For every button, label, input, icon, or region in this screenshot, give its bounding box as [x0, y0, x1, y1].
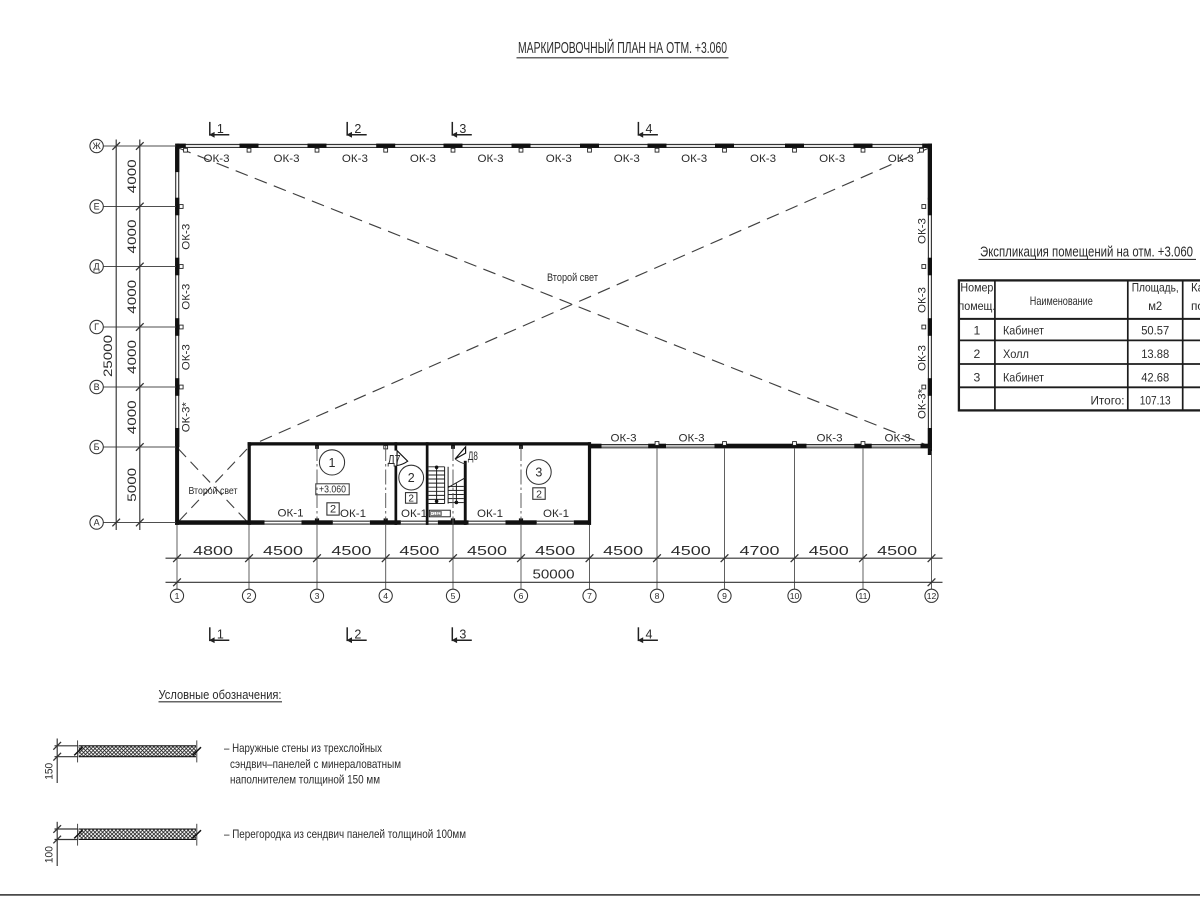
svg-text:7: 7 [587, 591, 592, 601]
svg-text:6: 6 [519, 591, 524, 601]
svg-text:50000: 50000 [533, 567, 575, 581]
svg-text:4000: 4000 [125, 280, 139, 314]
svg-text:4500: 4500 [467, 544, 507, 558]
svg-text:2: 2 [247, 591, 252, 601]
svg-text:4700: 4700 [740, 544, 780, 558]
svg-text:4000: 4000 [125, 400, 139, 434]
svg-text:Холл: Холл [1003, 347, 1029, 361]
svg-text:ОК-3*: ОК-3* [181, 401, 193, 432]
svg-text:ОК-1: ОК-1 [543, 508, 569, 520]
svg-text:4500: 4500 [809, 544, 849, 558]
svg-text:ОК-3: ОК-3 [181, 224, 193, 250]
svg-text:Г: Г [94, 322, 99, 332]
svg-text:Ж: Ж [92, 141, 101, 151]
svg-text:+3.060: +3.060 [319, 485, 346, 496]
svg-text:ОК-3*: ОК-3* [917, 388, 929, 419]
svg-text:А: А [94, 518, 100, 528]
svg-text:ОК-3: ОК-3 [888, 153, 914, 165]
svg-text:2: 2 [354, 122, 361, 136]
svg-text:Второй свет: Второй свет [189, 486, 238, 497]
svg-text:ОК-3: ОК-3 [204, 153, 230, 165]
svg-text:2: 2 [408, 493, 414, 504]
svg-text:ОК-3: ОК-3 [885, 432, 911, 444]
svg-text:4500: 4500 [877, 544, 917, 558]
svg-text:ОК-1: ОК-1 [340, 508, 366, 520]
svg-text:3: 3 [974, 371, 981, 385]
svg-text:2: 2 [536, 489, 542, 501]
svg-text:Итого:: Итого: [1091, 393, 1125, 407]
svg-text:ОК-3: ОК-3 [410, 153, 436, 165]
svg-text:Б: Б [94, 442, 100, 452]
svg-text:ОК-1: ОК-1 [278, 508, 304, 520]
svg-text:ОК-3: ОК-3 [274, 153, 300, 165]
svg-text:2: 2 [330, 504, 336, 516]
svg-text:3: 3 [459, 628, 466, 642]
svg-text:50.57: 50.57 [1141, 324, 1169, 338]
svg-text:1: 1 [329, 456, 336, 470]
svg-text:м2: м2 [1148, 299, 1162, 313]
svg-text:по: по [1191, 299, 1200, 313]
svg-text:13.88: 13.88 [1141, 347, 1169, 361]
svg-text:3: 3 [315, 591, 320, 601]
svg-text:ОК-3: ОК-3 [917, 345, 929, 371]
svg-text:4: 4 [383, 591, 388, 601]
svg-text:– Перегородка из сендвич панел: – Перегородка из сендвич панелей толщино… [224, 828, 466, 841]
svg-text:Кабинет: Кабинет [1003, 324, 1044, 338]
svg-text:Е: Е [94, 202, 100, 212]
svg-text:2: 2 [408, 471, 415, 485]
svg-text:11: 11 [859, 591, 868, 601]
svg-text:ОК-3: ОК-3 [478, 153, 504, 165]
svg-text:3: 3 [459, 122, 466, 136]
svg-text:1: 1 [217, 122, 224, 136]
svg-text:ОК-3: ОК-3 [917, 287, 929, 313]
svg-text:ОК-3: ОК-3 [679, 432, 705, 444]
svg-text:Площадь,: Площадь, [1132, 281, 1179, 295]
svg-text:42.68: 42.68 [1141, 371, 1169, 385]
svg-text:ОК-1: ОК-1 [477, 508, 503, 520]
svg-text:помещ.: помещ. [958, 299, 995, 313]
svg-text:ОК-3: ОК-3 [614, 153, 640, 165]
svg-text:1: 1 [974, 324, 981, 338]
svg-text:Кабинет: Кабинет [1003, 371, 1044, 385]
svg-text:9: 9 [722, 591, 727, 601]
svg-text:5000: 5000 [125, 468, 139, 502]
svg-text:ОК-3: ОК-3 [750, 153, 776, 165]
svg-text:4000: 4000 [125, 219, 139, 253]
svg-text:4: 4 [646, 122, 653, 136]
svg-text:Второй свет: Второй свет [547, 272, 598, 284]
svg-text:4000: 4000 [125, 159, 139, 193]
svg-text:В: В [94, 382, 100, 392]
svg-text:Экспликация помещений на отм.: Экспликация помещений на отм. +3.060 [980, 245, 1193, 261]
svg-text:100: 100 [44, 846, 56, 863]
svg-text:ОК-3: ОК-3 [546, 153, 572, 165]
svg-text:ОК-3: ОК-3 [342, 153, 368, 165]
svg-text:4800: 4800 [193, 544, 233, 558]
svg-text:4000: 4000 [125, 340, 139, 374]
svg-text:ОК-3: ОК-3 [917, 218, 929, 244]
svg-text:Номер: Номер [960, 281, 993, 295]
svg-text:4: 4 [646, 628, 653, 642]
svg-text:Д8: Д8 [468, 449, 478, 463]
svg-text:5: 5 [451, 591, 456, 601]
svg-text:+1.513: +1.513 [431, 511, 441, 516]
svg-text:1: 1 [175, 591, 180, 601]
svg-text:107.13: 107.13 [1140, 393, 1171, 407]
svg-text:ОК-3: ОК-3 [611, 432, 637, 444]
svg-text:ОК-3: ОК-3 [681, 153, 707, 165]
svg-text:ОК-1: ОК-1 [401, 508, 427, 520]
svg-text:4500: 4500 [535, 544, 575, 558]
svg-text:25000: 25000 [101, 335, 115, 377]
svg-text:10: 10 [790, 591, 800, 601]
svg-text:4500: 4500 [399, 544, 439, 558]
svg-text:наполнителем толщиной 150 мм: наполнителем толщиной 150 мм [230, 774, 380, 787]
svg-text:2: 2 [354, 628, 361, 642]
svg-text:– Наружные стены из трехслойны: – Наружные стены из трехслойных [224, 742, 382, 755]
svg-text:ОК-3: ОК-3 [181, 284, 193, 310]
svg-text:3: 3 [535, 466, 542, 480]
svg-text:Условные обозначения:: Условные обозначения: [159, 687, 282, 702]
svg-text:Д: Д [94, 262, 100, 272]
svg-text:4500: 4500 [671, 544, 711, 558]
svg-text:4500: 4500 [603, 544, 643, 558]
svg-text:Наименование: Наименование [1030, 294, 1093, 308]
svg-text:Д7: Д7 [388, 452, 401, 467]
svg-text:150: 150 [44, 763, 56, 780]
svg-text:8: 8 [655, 591, 660, 601]
svg-text:сэндвич–панелей с минераловатн: сэндвич–панелей с минераловатным [230, 758, 401, 771]
svg-text:1: 1 [217, 628, 224, 642]
svg-text:4500: 4500 [331, 544, 371, 558]
svg-text:МАРКИРОВОЧНЫЙ ПЛАН НА ОТМ. +3.: МАРКИРОВОЧНЫЙ ПЛАН НА ОТМ. +3.060 [518, 39, 727, 57]
svg-text:12: 12 [927, 591, 937, 601]
svg-text:2: 2 [974, 347, 981, 361]
svg-text:ОК-3: ОК-3 [817, 432, 843, 444]
svg-text:ОК-3: ОК-3 [819, 153, 845, 165]
svg-text:ОК-3: ОК-3 [181, 344, 193, 370]
svg-text:Ка: Ка [1191, 281, 1200, 295]
svg-text:4500: 4500 [263, 544, 303, 558]
